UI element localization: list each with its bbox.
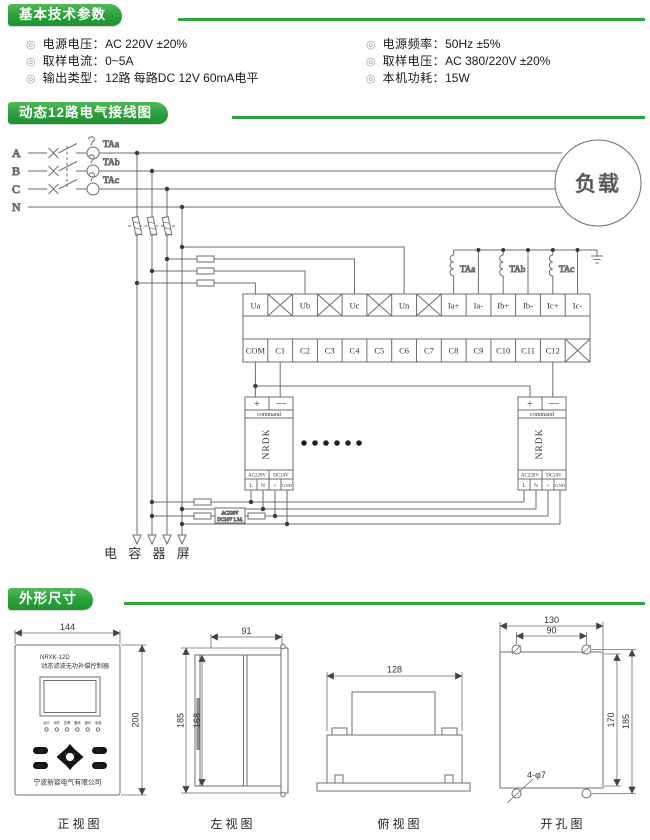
view-caption: 俯视图	[377, 816, 422, 831]
module-term: N	[534, 483, 538, 489]
dim-outer-width: 130	[544, 615, 559, 625]
terminal-label: Ib-	[523, 301, 533, 311]
tap-verticals	[128, 153, 186, 544]
phase-label: N	[12, 200, 21, 214]
datasheet-page: 基本技术参数 动态12路电气接线图 外形尺寸 ◎电源电压：AC 220V ±20…	[0, 0, 650, 840]
load-label: 负载	[575, 172, 621, 196]
view-caption: 正视图	[57, 816, 102, 831]
hole-view: 130 90 170 185 4-φ7	[500, 615, 636, 803]
front-view: 运行 动作 告警 备用 通讯 电源	[15, 622, 146, 795]
phase-label: C	[12, 182, 20, 196]
module-supply-dc: DC24V	[546, 474, 562, 479]
dim-outer-height: 185	[176, 713, 186, 728]
terminal-block	[243, 294, 590, 362]
capacitor-bank-label: 电 容 器 屏	[104, 546, 194, 561]
terminal-label: Ic+	[547, 301, 559, 311]
module-term: +	[273, 483, 276, 489]
top-view: 128	[317, 665, 470, 792]
technical-drawing-canvas: A B C N TAa TAb TAc 负载	[0, 0, 650, 840]
ct-primary-label: TAc	[103, 176, 119, 186]
terminal-label: Ub	[300, 301, 310, 311]
terminal-label: C12	[546, 346, 560, 356]
terminal-label: Ib+	[497, 301, 509, 311]
module-term: GND	[282, 483, 293, 488]
module-plus: +	[254, 399, 260, 410]
led-label: 运行	[43, 720, 50, 725]
module-plus: +	[527, 399, 533, 410]
dim-inner-height: 170	[606, 712, 616, 727]
terminal-label: Uc	[350, 301, 360, 311]
module-term: GND	[555, 483, 566, 488]
phase-label: A	[12, 146, 21, 160]
ct-secondary-label: TAa	[460, 264, 475, 274]
terminal-label: C1	[275, 346, 285, 356]
phase-label: B	[12, 164, 20, 178]
center-button	[65, 752, 74, 761]
terminal-label: Ia+	[448, 301, 460, 311]
terminal-label: C9	[473, 346, 483, 356]
ct-primary-label: TAb	[103, 158, 120, 168]
terminal-label: C6	[399, 346, 409, 356]
dim-hole-spacing: 90	[546, 626, 556, 636]
terminal-label: Un	[399, 301, 410, 311]
view-caption: 左视图	[210, 816, 255, 831]
button-label: 设置	[37, 748, 45, 753]
dimension-views: 运行 动作 告警 备用 通讯 电源	[15, 615, 636, 831]
led-label: 告警	[64, 720, 71, 725]
terminal-label: C7	[424, 346, 434, 356]
dim-inner-height: 168	[192, 713, 202, 728]
module-name: NRDK	[535, 429, 545, 460]
terminal-label: Ua	[250, 301, 260, 311]
led-label: 电源	[95, 720, 102, 725]
led-label: 备用	[74, 720, 80, 725]
adapter-line1: AC220V	[221, 512, 239, 517]
terminal-label: C2	[300, 346, 310, 356]
company-text: 宁波新容电气有限公司	[34, 778, 102, 787]
device-name-text: 动态滤波无功补偿控制器	[41, 662, 110, 670]
ct-secondary-label: TAc	[559, 264, 574, 274]
module-command: command	[257, 412, 281, 418]
terminal-label: C8	[449, 346, 459, 356]
terminal-label: C5	[374, 346, 384, 356]
hole-note: 4-φ7	[527, 770, 546, 780]
supply-buses	[152, 490, 560, 524]
button-label: 复位	[37, 763, 45, 768]
terminal-label: C10	[496, 346, 510, 356]
led-label: 动作	[54, 720, 61, 725]
wiring-diagram: A B C N TAa TAb TAc 负载	[12, 137, 641, 561]
module-supply-ac: AC220V	[248, 474, 266, 479]
terminal-label: C4	[350, 346, 361, 356]
dim-height: 200	[131, 712, 141, 727]
view-caption: 开孔图	[540, 817, 585, 831]
terminal-label: C3	[325, 346, 335, 356]
module-minus: —	[548, 398, 560, 409]
button-label: 确认	[96, 748, 104, 753]
dim-width: 144	[60, 622, 75, 632]
module-term: N	[261, 483, 265, 489]
ct-secondary-label: TAb	[510, 264, 526, 274]
module-minus: —	[275, 398, 287, 409]
led-label: 通讯	[85, 720, 92, 725]
ct-primary-label: TAa	[103, 140, 120, 150]
command-feeds	[255, 362, 552, 397]
module-supply-dc: DC24V	[273, 474, 289, 479]
module-term: +	[546, 483, 549, 489]
module-supply-ac: AC220V	[521, 474, 539, 479]
module-command: command	[530, 412, 554, 418]
terminal-label: COM	[246, 346, 266, 356]
terminal-label: Ic-	[573, 301, 583, 311]
more-modules-ellipsis	[301, 440, 362, 446]
model-text: NRXK-12D	[40, 655, 70, 661]
dim-outer-height: 185	[621, 714, 631, 729]
terminal-label: C11	[521, 346, 535, 356]
voltage-branches	[137, 247, 404, 294]
adapter-line2: DC24V 1.3A	[217, 518, 243, 523]
dim-depth: 91	[241, 626, 251, 636]
left-view: 91 185 168	[176, 626, 289, 797]
button-label: 退出	[96, 763, 104, 768]
terminal-label: Ia-	[474, 301, 484, 311]
dim-width: 128	[387, 665, 402, 675]
module-name: NRDK	[262, 429, 272, 460]
